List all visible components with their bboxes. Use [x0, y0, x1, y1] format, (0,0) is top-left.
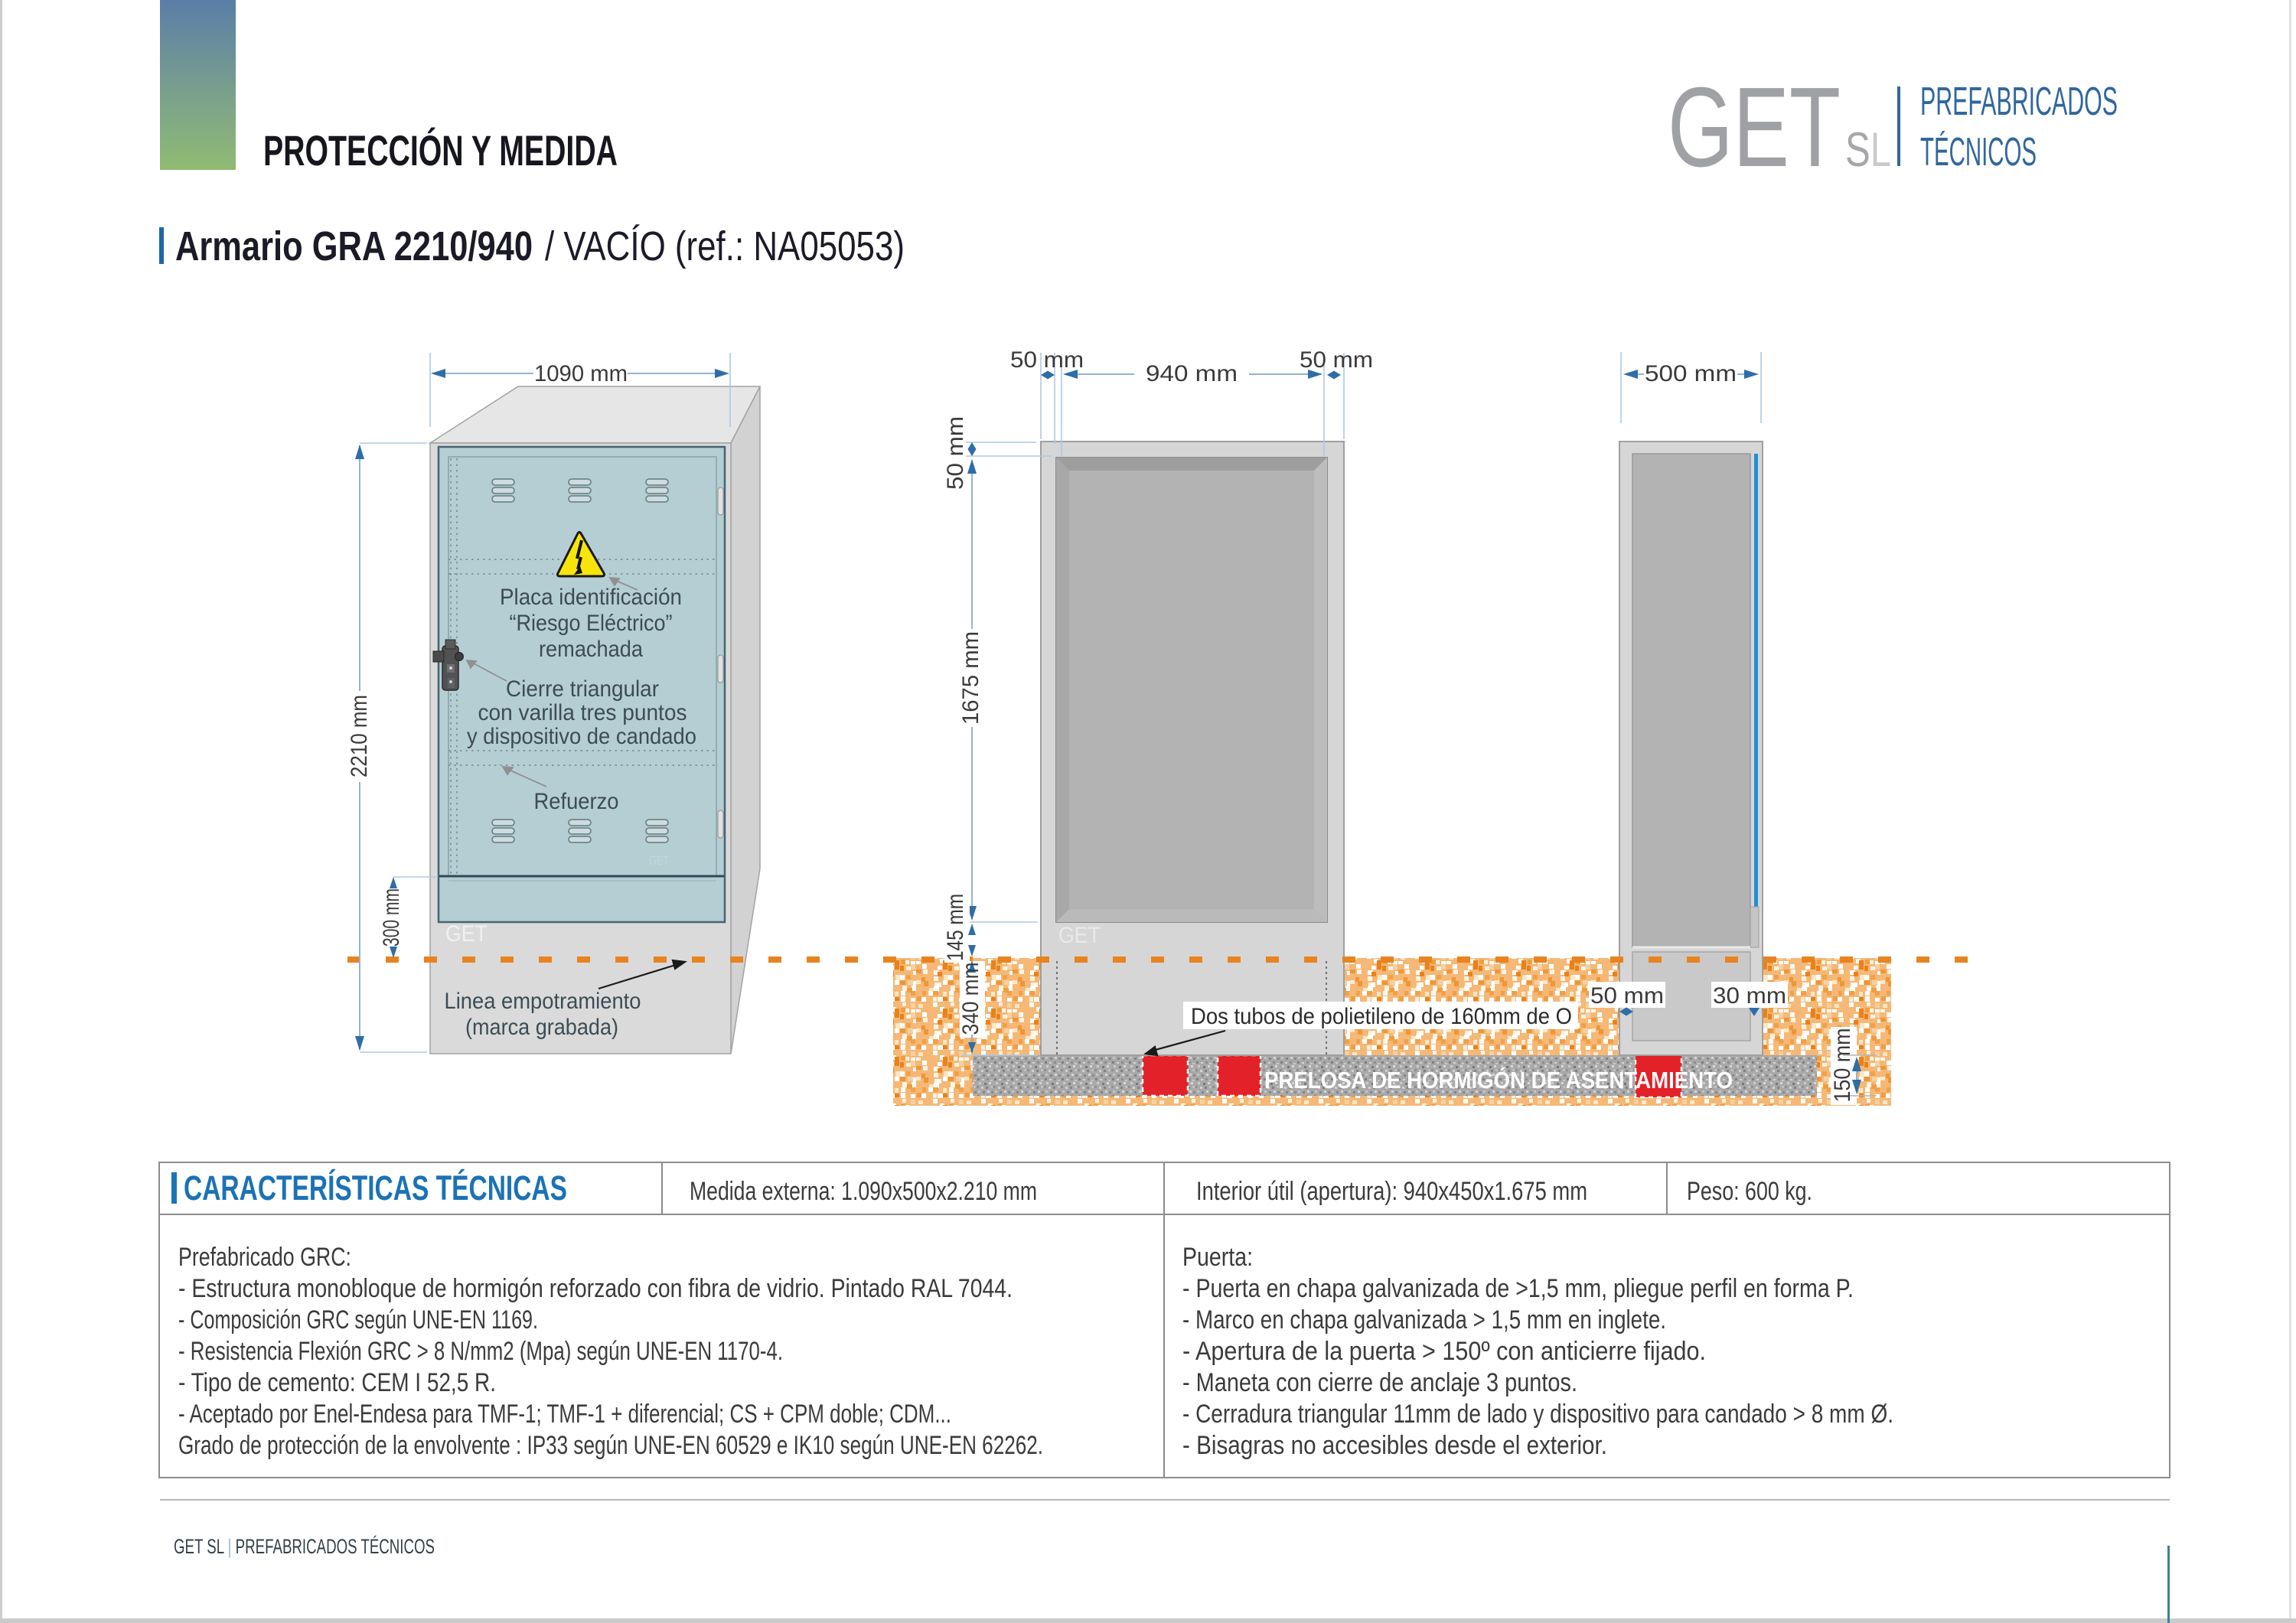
svg-text:940 mm: 940 mm: [1146, 361, 1238, 386]
svg-text:145 mm: 145 mm: [943, 894, 968, 961]
svg-text:- Resistencia Flexión GRC > 8: - Resistencia Flexión GRC > 8 N/mm2 (Mpa…: [178, 1337, 783, 1366]
svg-text:CARACTERÍSTICAS TÉCNICAS: CARACTERÍSTICAS TÉCNICAS: [184, 1168, 567, 1207]
svg-text:GET: GET: [1668, 64, 1841, 191]
svg-text:50 mm: 50 mm: [1590, 983, 1664, 1009]
svg-text:PREFABRICADOS: PREFABRICADOS: [1920, 80, 2118, 124]
svg-text:PROTECCIÓN Y MEDIDA: PROTECCIÓN Y MEDIDA: [263, 126, 618, 174]
svg-text:- Marco en chapa galvanizada >: - Marco en chapa galvanizada > 1,5 mm en…: [1182, 1305, 1666, 1335]
svg-text:y dispositivo de candado: y dispositivo de candado: [467, 724, 696, 749]
svg-text:50 mm: 50 mm: [1300, 347, 1373, 373]
svg-text:30 mm: 30 mm: [1713, 983, 1786, 1009]
svg-text:Placa identificación: Placa identificación: [500, 585, 682, 610]
svg-text:- Maneta con cierre de anclaje: - Maneta con cierre de anclaje 3 puntos.: [1182, 1368, 1577, 1397]
svg-text:Cierre triangular: Cierre triangular: [506, 676, 659, 702]
svg-text:- Aceptado por Enel-Endesa par: - Aceptado por Enel-Endesa para TMF-1; T…: [178, 1400, 951, 1429]
svg-text:1675 mm: 1675 mm: [958, 631, 983, 725]
svg-text:GET: GET: [445, 921, 488, 947]
svg-text:Prefabricado GRC:: Prefabricado GRC:: [178, 1243, 351, 1272]
svg-text:340 mm: 340 mm: [958, 963, 983, 1035]
svg-text:- Cerradura triangular 11mm de: - Cerradura triangular 11mm de lado y di…: [1182, 1400, 1893, 1429]
svg-text:- Composición GRC según UNE-EN: - Composición GRC según UNE-EN 1169.: [178, 1305, 538, 1335]
svg-text:/ VACÍO (ref.: NA05053): / VACÍO (ref.: NA05053): [545, 223, 905, 269]
svg-text:- Bisagras no accesibles desde: - Bisagras no accesibles desde el exteri…: [1182, 1431, 1607, 1460]
svg-text:Linea empotramiento: Linea empotramiento: [445, 989, 641, 1014]
svg-text:GET: GET: [1058, 923, 1101, 948]
svg-text:Interior útil (apertura): 940x: Interior útil (apertura): 940x450x1.675 …: [1196, 1177, 1587, 1206]
svg-text:2210 mm: 2210 mm: [347, 695, 372, 777]
svg-text:SL: SL: [1845, 123, 1891, 177]
svg-text:300 mm: 300 mm: [379, 888, 404, 947]
svg-text:50 mm: 50 mm: [943, 416, 968, 490]
svg-text:remachada: remachada: [539, 637, 643, 662]
svg-text:- Tipo de cemento: CEM I 52,5: - Tipo de cemento: CEM I 52,5 R.: [178, 1368, 496, 1397]
svg-text:500 mm: 500 mm: [1645, 361, 1737, 386]
svg-text:150 mm: 150 mm: [1830, 1028, 1855, 1103]
svg-text:Dos tubos de polietileno de 16: Dos tubos de polietileno de 160mm de O: [1191, 1004, 1572, 1029]
svg-text:con varilla tres puntos: con varilla tres puntos: [478, 700, 687, 725]
svg-text:Refuerzo: Refuerzo: [534, 789, 619, 814]
svg-text:TÉCNICOS: TÉCNICOS: [1920, 130, 2037, 174]
svg-text:(marca grabada): (marca grabada): [465, 1015, 618, 1040]
svg-text:1090 mm: 1090 mm: [534, 361, 628, 386]
svg-text:Grado de protección de la envo: Grado de protección de la envolvente : I…: [178, 1431, 1043, 1460]
svg-text:- Estructura monobloque de hor: - Estructura monobloque de hormigón refo…: [178, 1274, 1013, 1303]
svg-text:Medida externa: 1.090x500x2.21: Medida externa: 1.090x500x2.210 mm: [690, 1177, 1037, 1206]
svg-text:- Puerta en chapa galvanizada: - Puerta en chapa galvanizada de >1,5 mm…: [1182, 1274, 1854, 1303]
svg-text:“Riesgo Eléctrico”: “Riesgo Eléctrico”: [510, 611, 673, 636]
svg-text:Peso: 600 kg.: Peso: 600 kg.: [1687, 1177, 1812, 1206]
svg-text:PRELOSA DE HORMIGÓN DE ASENTAM: PRELOSA DE HORMIGÓN DE ASENTAMIENTO: [1264, 1066, 1733, 1093]
svg-text:GET: GET: [649, 853, 669, 868]
svg-text:50 mm: 50 mm: [1010, 347, 1084, 373]
svg-text:GET SL | PREFABRICADOS TÉCNICO: GET SL | PREFABRICADOS TÉCNICOS: [174, 1535, 435, 1558]
svg-text:- Apertura de la puerta > 150º: - Apertura de la puerta > 150º con antic…: [1182, 1337, 1706, 1366]
svg-text:Puerta:: Puerta:: [1182, 1243, 1253, 1272]
svg-text:Armario GRA 2210/940: Armario GRA 2210/940: [175, 223, 533, 269]
